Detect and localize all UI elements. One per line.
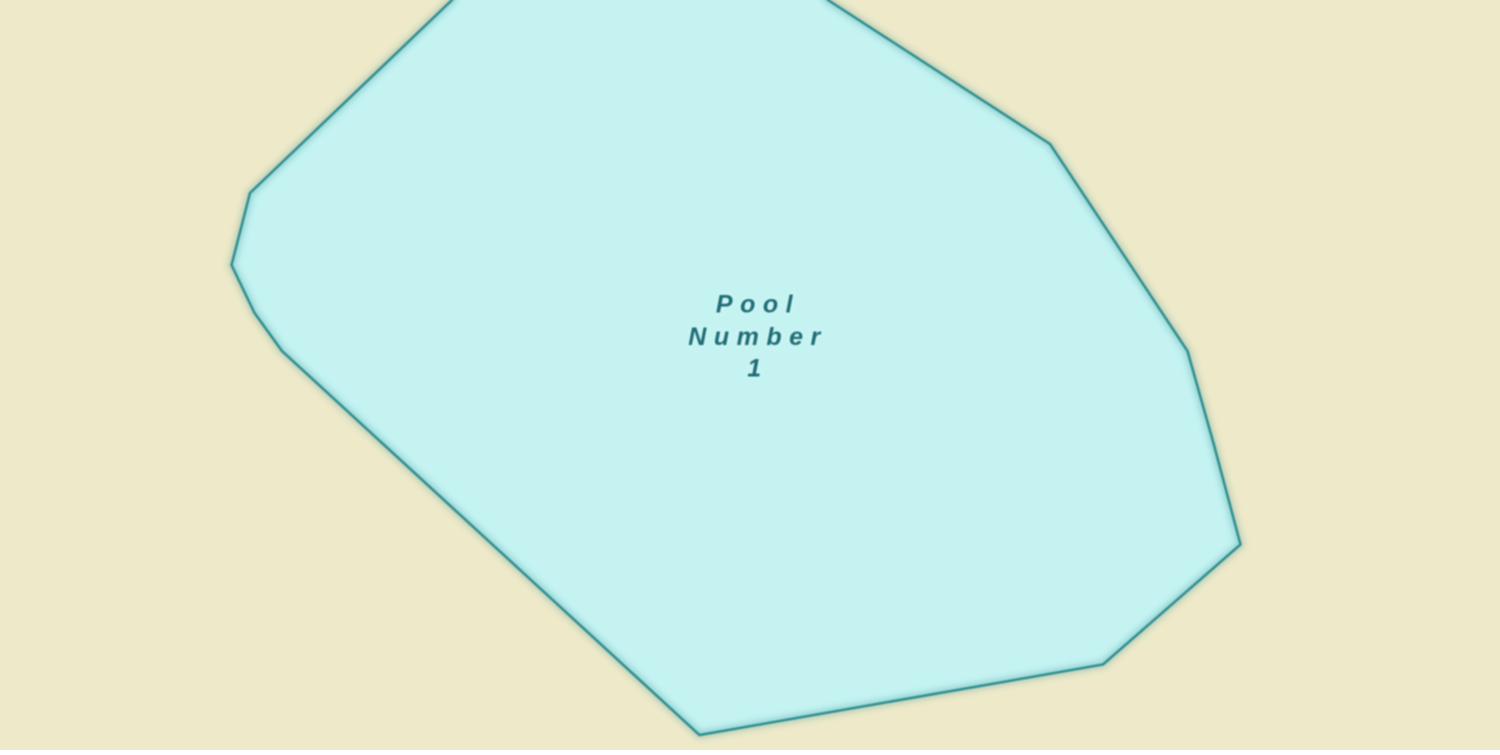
svg-text:Pool: Pool (716, 291, 800, 319)
svg-text:1: 1 (747, 355, 768, 383)
svg-text:Number: Number (688, 323, 827, 351)
